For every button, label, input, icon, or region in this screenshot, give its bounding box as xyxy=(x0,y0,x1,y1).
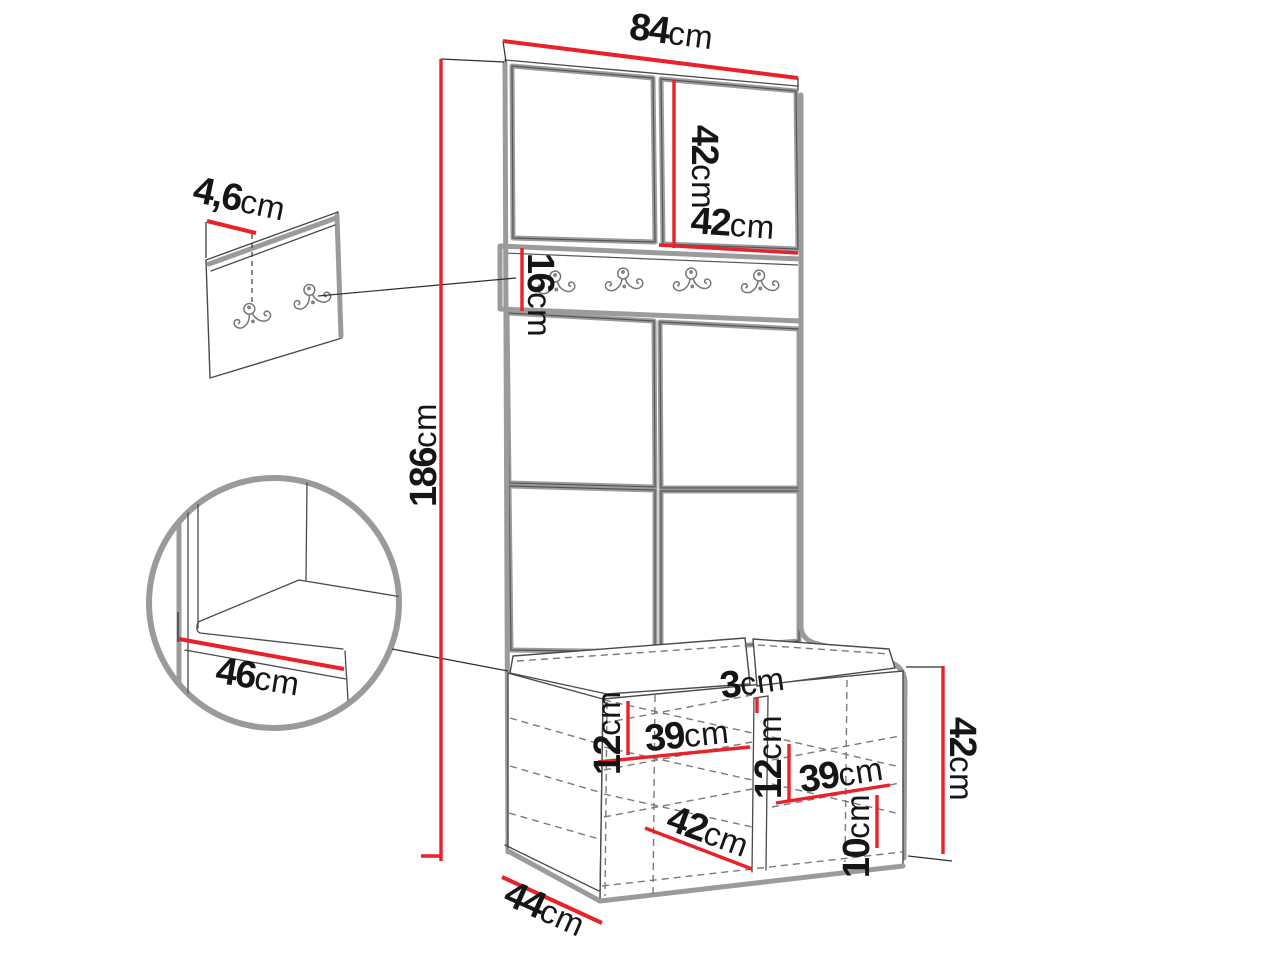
mid-left-panel xyxy=(507,313,655,487)
dim-left-comp-height-label: 12cm xyxy=(587,691,629,775)
dim-rail-height-label: 16cm xyxy=(519,253,561,337)
leader-wall-panel xyxy=(318,278,516,296)
low-left-panel xyxy=(509,486,655,652)
top-left-panel xyxy=(512,66,655,242)
low-right-panel xyxy=(661,491,799,652)
bench-side-face xyxy=(508,673,603,901)
dim-bench-height-label: 42cm xyxy=(941,717,983,801)
dim-right-comp-height-label: 12cm xyxy=(748,715,790,799)
mid-right-panel xyxy=(660,322,799,488)
dim-wall-panel-thickness-line xyxy=(207,221,256,233)
furniture-dimension-diagram: 84cm 42cm 42cm 16cm 4,6cm 186cm 46cm 12c… xyxy=(0,0,1280,960)
leader-detail-circle xyxy=(392,649,508,671)
dim-total-width-label: 84cm xyxy=(627,6,716,58)
dim-bottom-shelf-label: 10cm xyxy=(836,794,878,878)
wall-hook-panel xyxy=(206,212,342,378)
dim-top-panel-height-label: 42cm xyxy=(683,125,725,209)
dim-wall-panel-thickness-label: 4,6cm xyxy=(189,169,289,229)
dim-total-height-label: 186cm xyxy=(403,403,445,507)
dim-top-panel-width-label: 42cm xyxy=(689,200,776,248)
